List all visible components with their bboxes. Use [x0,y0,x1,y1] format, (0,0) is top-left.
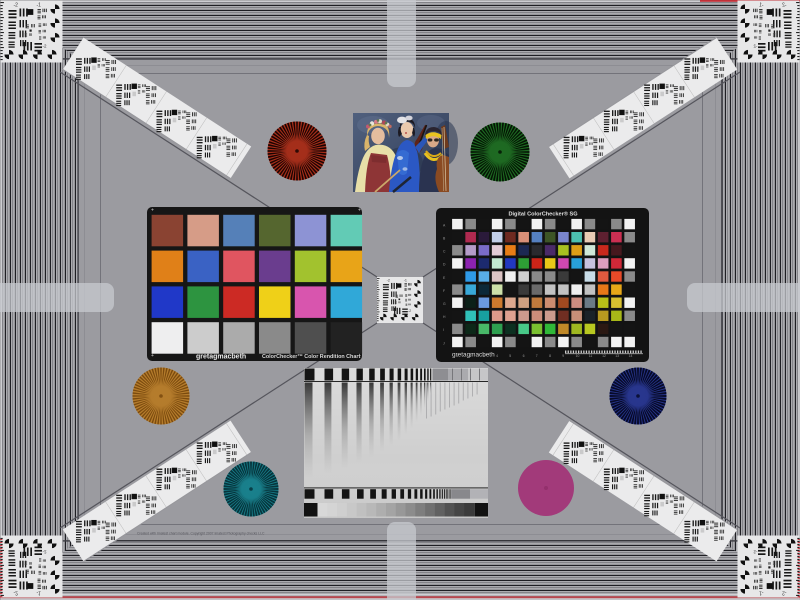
svg-text:Digital ColorChecker® SG: Digital ColorChecker® SG [508,211,577,218]
svg-text:4: 4 [496,354,498,358]
svg-text:2: 2 [470,354,472,358]
svg-text:J: J [443,341,445,345]
svg-text:6: 6 [523,354,525,358]
svg-text:11: 11 [589,354,593,358]
svg-text:9: 9 [562,354,564,358]
svg-text:I: I [443,328,444,332]
svg-text:gretagmacbeth: gretagmacbeth [452,352,495,359]
svg-text:+: + [358,353,361,359]
svg-text:+: + [151,353,154,359]
svg-text:G: G [443,302,446,306]
svg-text:gretagmacbeth: gretagmacbeth [196,354,246,361]
svg-text:Created with Imatest chart mod: Created with Imatest chart module. Copyr… [137,532,265,536]
svg-text:13: 13 [615,354,619,358]
svg-text:+: + [151,208,154,214]
svg-text:F: F [443,289,445,293]
svg-text:1: 1 [456,354,458,358]
svg-text:ColorChecker™ Color Rendition: ColorChecker™ Color Rendition Chart [262,354,360,360]
svg-text:+: + [358,208,361,214]
svg-text:14: 14 [629,354,633,358]
svg-text:10: 10 [576,354,580,358]
svg-text:3: 3 [483,354,485,358]
svg-text:12: 12 [602,354,606,358]
svg-text:5: 5 [509,354,511,358]
svg-text:8: 8 [549,354,551,358]
svg-text:7: 7 [536,354,538,358]
